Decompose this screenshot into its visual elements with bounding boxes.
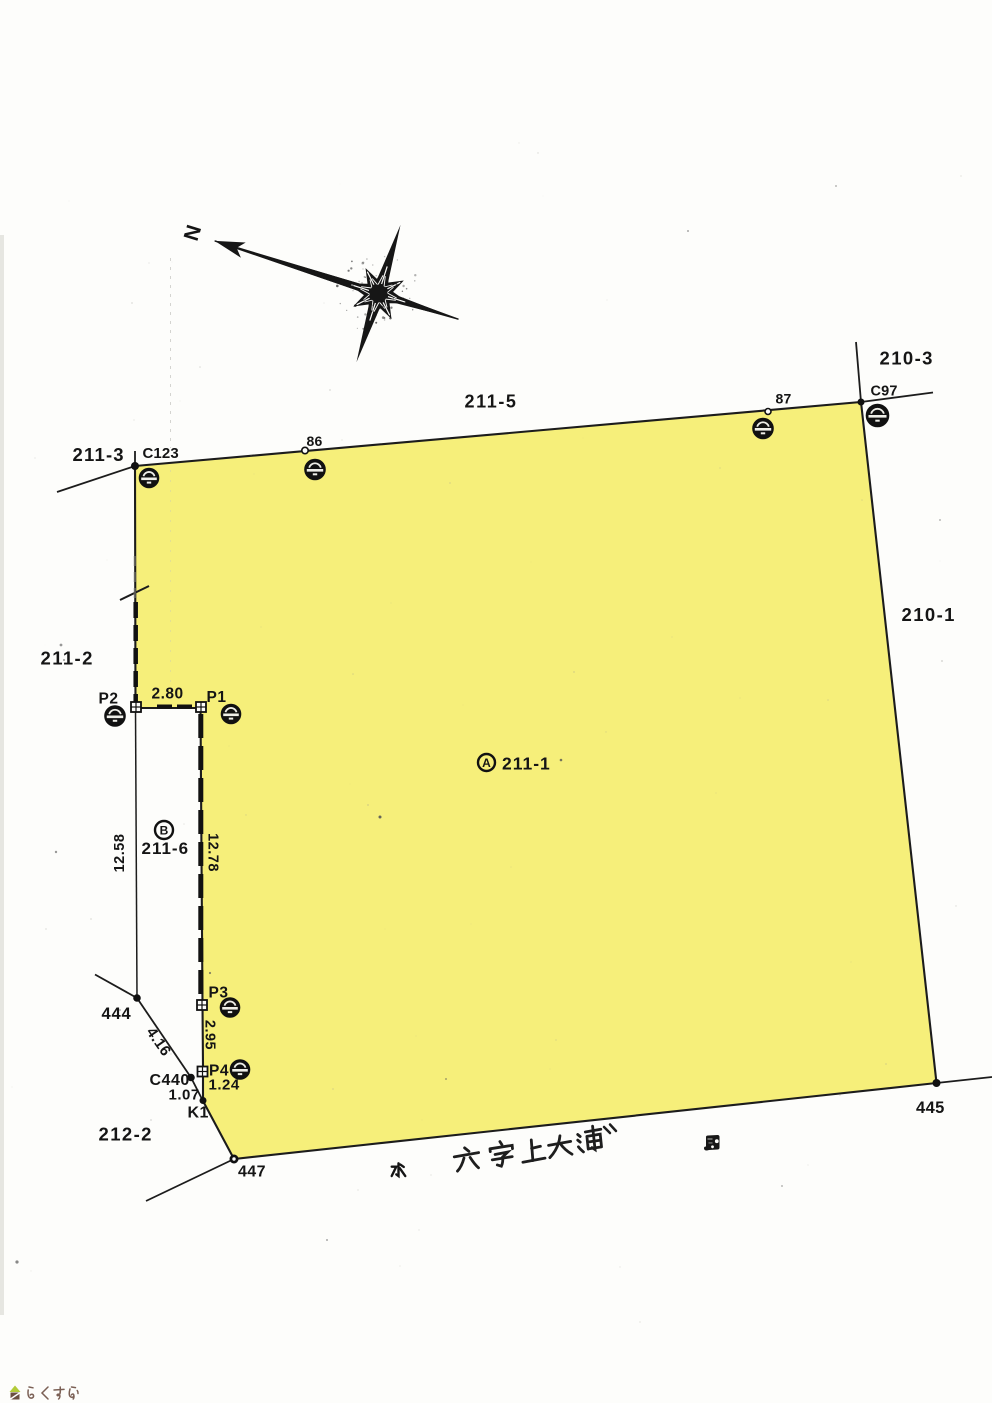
- svg-text:2.95: 2.95: [202, 1020, 218, 1050]
- svg-text:211-3: 211-3: [73, 444, 125, 465]
- svg-text:C123: C123: [143, 445, 179, 462]
- svg-text:211-5: 211-5: [465, 392, 518, 412]
- svg-text:211-6: 211-6: [142, 839, 190, 858]
- svg-text:212-2: 212-2: [99, 1124, 153, 1145]
- svg-text:444: 444: [102, 1005, 132, 1023]
- svg-text:B: B: [160, 824, 169, 838]
- svg-text:12.78: 12.78: [205, 833, 221, 872]
- svg-text:A: A: [482, 756, 491, 770]
- svg-text:211-2: 211-2: [41, 648, 94, 669]
- svg-text:P1: P1: [207, 689, 227, 706]
- svg-text:211-1: 211-1: [502, 754, 551, 774]
- svg-text:P3: P3: [209, 985, 229, 1002]
- svg-text:12.58: 12.58: [112, 834, 128, 873]
- svg-text:447: 447: [238, 1164, 266, 1181]
- svg-text:210-3: 210-3: [880, 348, 934, 369]
- svg-text:87: 87: [776, 391, 792, 407]
- svg-text:C97: C97: [871, 384, 898, 400]
- svg-text:445: 445: [916, 1099, 945, 1117]
- svg-text:P2: P2: [99, 691, 119, 708]
- svg-text:1.24: 1.24: [209, 1077, 240, 1094]
- svg-text:210-1: 210-1: [902, 604, 956, 625]
- svg-text:K1: K1: [188, 1105, 209, 1122]
- svg-text:1.07: 1.07: [169, 1087, 200, 1104]
- svg-text:86: 86: [307, 433, 323, 449]
- svg-text:2.80: 2.80: [152, 686, 184, 703]
